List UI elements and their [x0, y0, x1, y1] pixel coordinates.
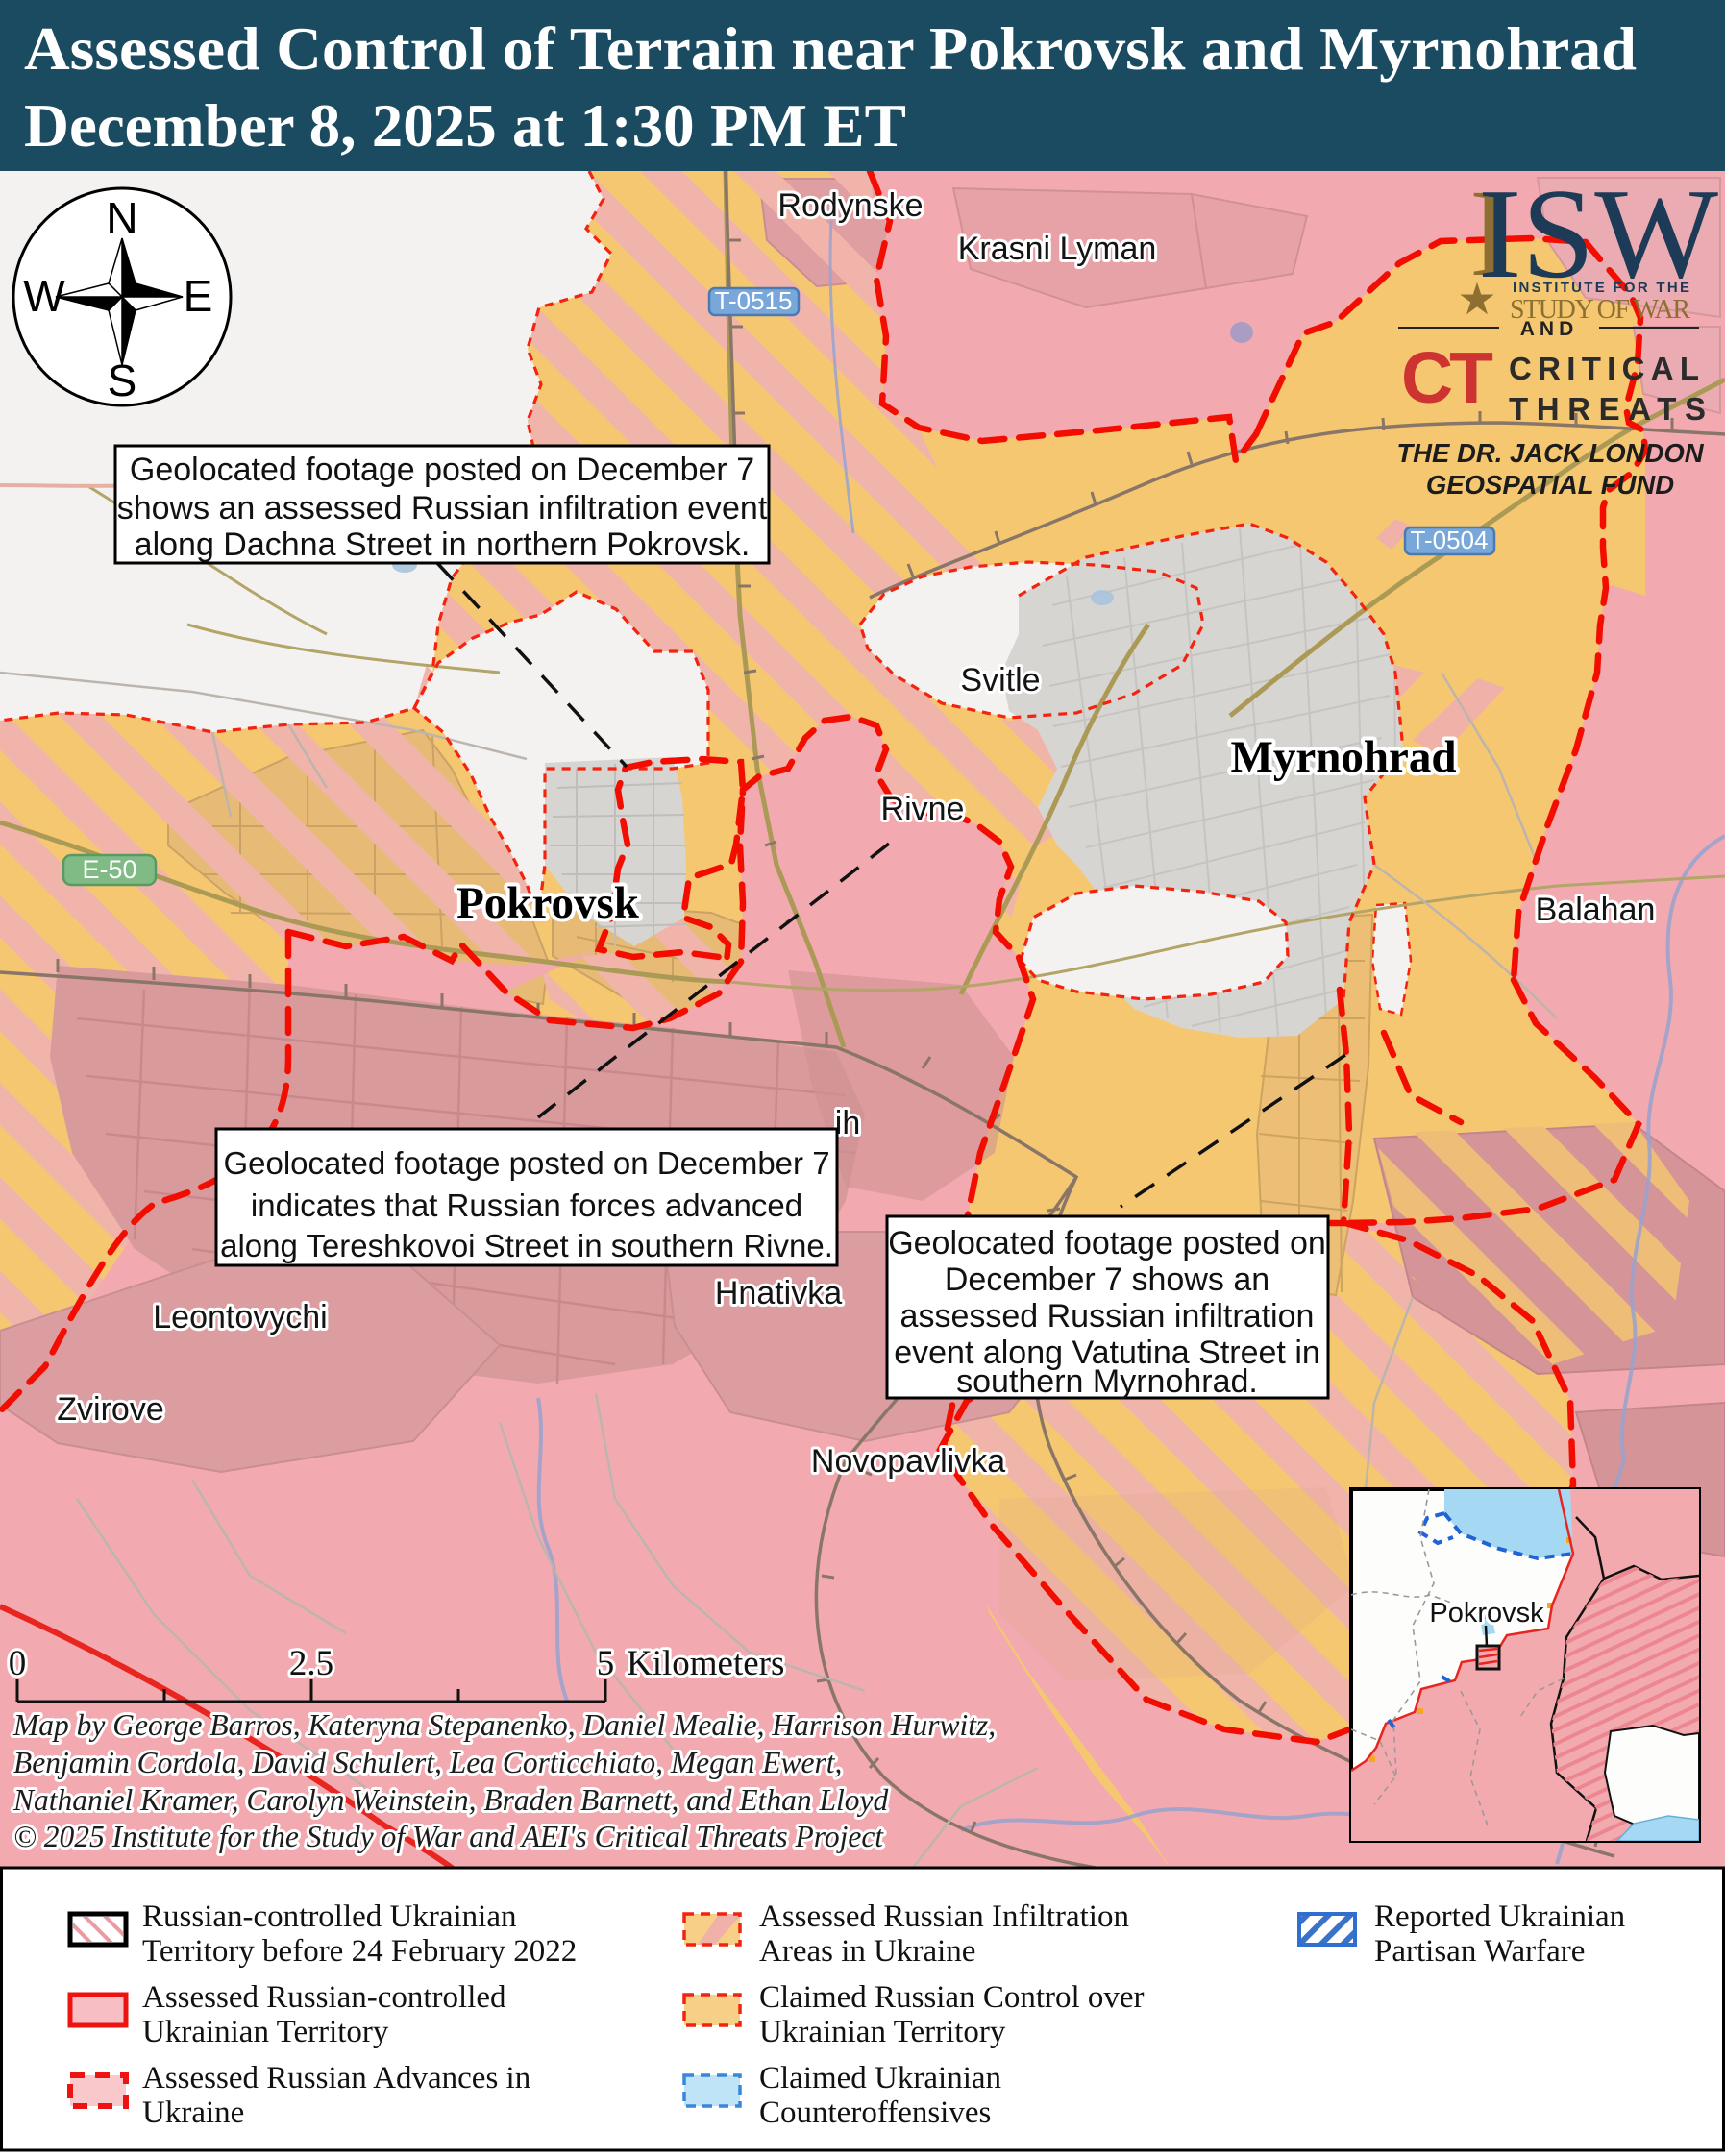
svg-text:Russian-controlled Ukrainian: Russian-controlled Ukrainian [142, 1899, 517, 1934]
svg-text:Assessed Russian Infiltration: Assessed Russian Infiltration [759, 1899, 1129, 1934]
svg-text:Map by George Barros, Kateryna: Map by George Barros, Kateryna Stepanenk… [12, 1708, 996, 1742]
svg-text:5: 5 [597, 1644, 615, 1683]
svg-text:Zvirove: Zvirove [57, 1391, 163, 1428]
svg-text:Geolocated footage posted on D: Geolocated footage posted on December 7 [223, 1145, 829, 1181]
svg-text:T-0515: T-0515 [715, 286, 793, 315]
svg-text:2.5: 2.5 [289, 1644, 333, 1683]
svg-text:Rodynske: Rodynske [777, 187, 923, 224]
svg-text:Reported Ukrainian: Reported Ukrainian [1374, 1899, 1625, 1934]
svg-text:Assessed Control of Terrain ne: Assessed Control of Terrain near Pokrovs… [24, 14, 1637, 83]
svg-text:Nathaniel Kramer, Carolyn Wein: Nathaniel Kramer, Carolyn Weinstein, Bra… [12, 1783, 889, 1817]
svg-text:Geolocated footage posted on D: Geolocated footage posted on December 7 [130, 452, 754, 488]
svg-text:along Dachna Street in norther: along Dachna Street in northern Pokrovsk… [135, 527, 751, 563]
svg-text:INSTITUTE FOR THE: INSTITUTE FOR THE [1513, 280, 1691, 296]
svg-text:0: 0 [9, 1644, 27, 1683]
svg-text:AND: AND [1520, 318, 1579, 340]
svg-text:ih: ih [835, 1105, 860, 1141]
svg-text:Ukrainian Territory: Ukrainian Territory [759, 2015, 1006, 2049]
svg-text:Ukraine: Ukraine [142, 2095, 244, 2130]
svg-text:W: W [23, 271, 65, 321]
svg-text:Territory before 24 February 2: Territory before 24 February 2022 [142, 1934, 577, 1969]
svg-text:Krasni Lyman: Krasni Lyman [958, 231, 1157, 267]
svg-text:Novopavlivka: Novopavlivka [811, 1443, 1005, 1480]
svg-text:★: ★ [1457, 274, 1496, 324]
svg-text:Leontovychi: Leontovychi [153, 1299, 327, 1335]
svg-text:Ukrainian Territory: Ukrainian Territory [142, 2015, 389, 2049]
svg-text:© 2025 Institute for the Study: © 2025 Institute for the Study of War an… [13, 1820, 884, 1853]
svg-text:N: N [106, 193, 137, 243]
svg-text:Pokrovsk: Pokrovsk [456, 878, 640, 928]
svg-text:Hnativka: Hnativka [715, 1275, 842, 1311]
svg-text:Pokrovsk: Pokrovsk [1429, 1598, 1544, 1629]
svg-text:Partisan Warfare: Partisan Warfare [1374, 1934, 1585, 1969]
svg-text:THE DR. JACK LONDON: THE DR. JACK LONDON [1396, 438, 1704, 468]
svg-text:Geolocated footage posted on: Geolocated footage posted on [888, 1225, 1326, 1262]
svg-text:December 8, 2025 at 1:30 PM ET: December 8, 2025 at 1:30 PM ET [24, 91, 906, 159]
svg-text:E-50: E-50 [82, 855, 136, 884]
svg-text:THREATS: THREATS [1509, 391, 1706, 427]
svg-text:Rivne: Rivne [881, 791, 965, 827]
svg-text:Balahan: Balahan [1536, 892, 1656, 928]
svg-text:E: E [184, 271, 213, 321]
svg-text:southern Myrnohrad.: southern Myrnohrad. [956, 1363, 1258, 1400]
svg-text:along Tereshkovoi Street in so: along Tereshkovoi Street in southern Riv… [220, 1228, 833, 1263]
svg-text:assessed Russian infiltration: assessed Russian infiltration [900, 1298, 1315, 1335]
svg-text:shows an assessed Russian infi: shows an assessed Russian infiltration e… [117, 490, 768, 527]
svg-text:Assessed Russian-controlled: Assessed Russian-controlled [142, 1980, 506, 2015]
svg-text:CT: CT [1401, 337, 1492, 418]
svg-text:Svitle: Svitle [960, 662, 1040, 698]
svg-text:GEOSPATIAL FUND: GEOSPATIAL FUND [1426, 470, 1674, 500]
svg-text:Kilometers: Kilometers [627, 1644, 784, 1683]
svg-text:Assessed Russian Advances in: Assessed Russian Advances in [142, 2061, 530, 2095]
svg-text:Benjamin Cordola, David Schule: Benjamin Cordola, David Schulert, Lea Co… [13, 1746, 842, 1779]
svg-text:Claimed Russian Control over: Claimed Russian Control over [759, 1980, 1145, 2015]
svg-text:December 7 shows an: December 7 shows an [945, 1262, 1269, 1298]
svg-text:Areas in Ukraine: Areas in Ukraine [759, 1934, 975, 1969]
svg-text:Myrnohrad: Myrnohrad [1231, 732, 1457, 782]
svg-text:Counteroffensives: Counteroffensives [759, 2095, 991, 2130]
svg-text:T-0504: T-0504 [1411, 526, 1489, 554]
svg-text:S: S [108, 355, 137, 405]
svg-text:Claimed Ukrainian: Claimed Ukrainian [759, 2061, 1001, 2095]
svg-text:indicates that Russian forces: indicates that Russian forces advanced [251, 1188, 802, 1223]
